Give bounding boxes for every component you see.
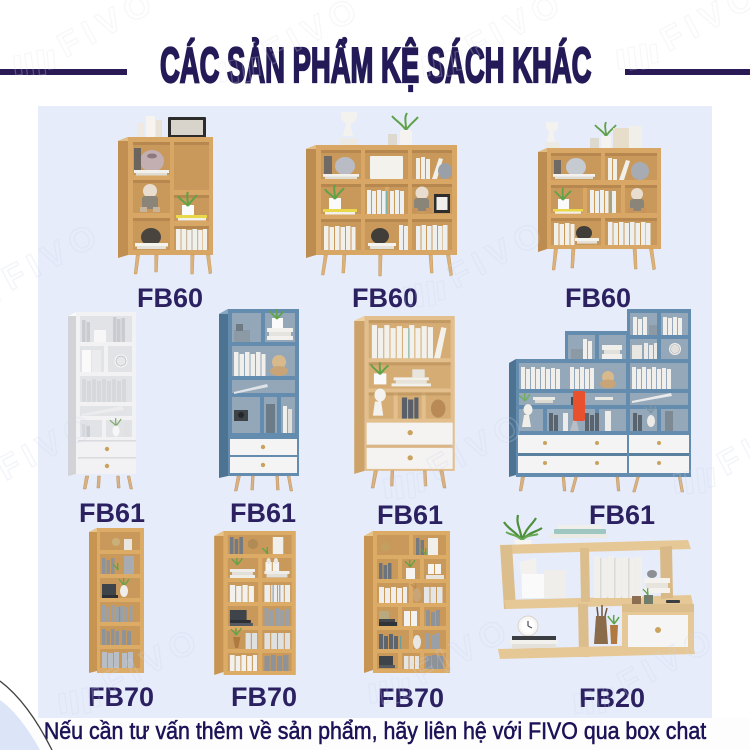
svg-text:FIVO: FIVO [51, 0, 163, 65]
svg-text:FIVO: FIVO [654, 0, 750, 59]
svg-text:FIVO: FIVO [711, 399, 750, 483]
